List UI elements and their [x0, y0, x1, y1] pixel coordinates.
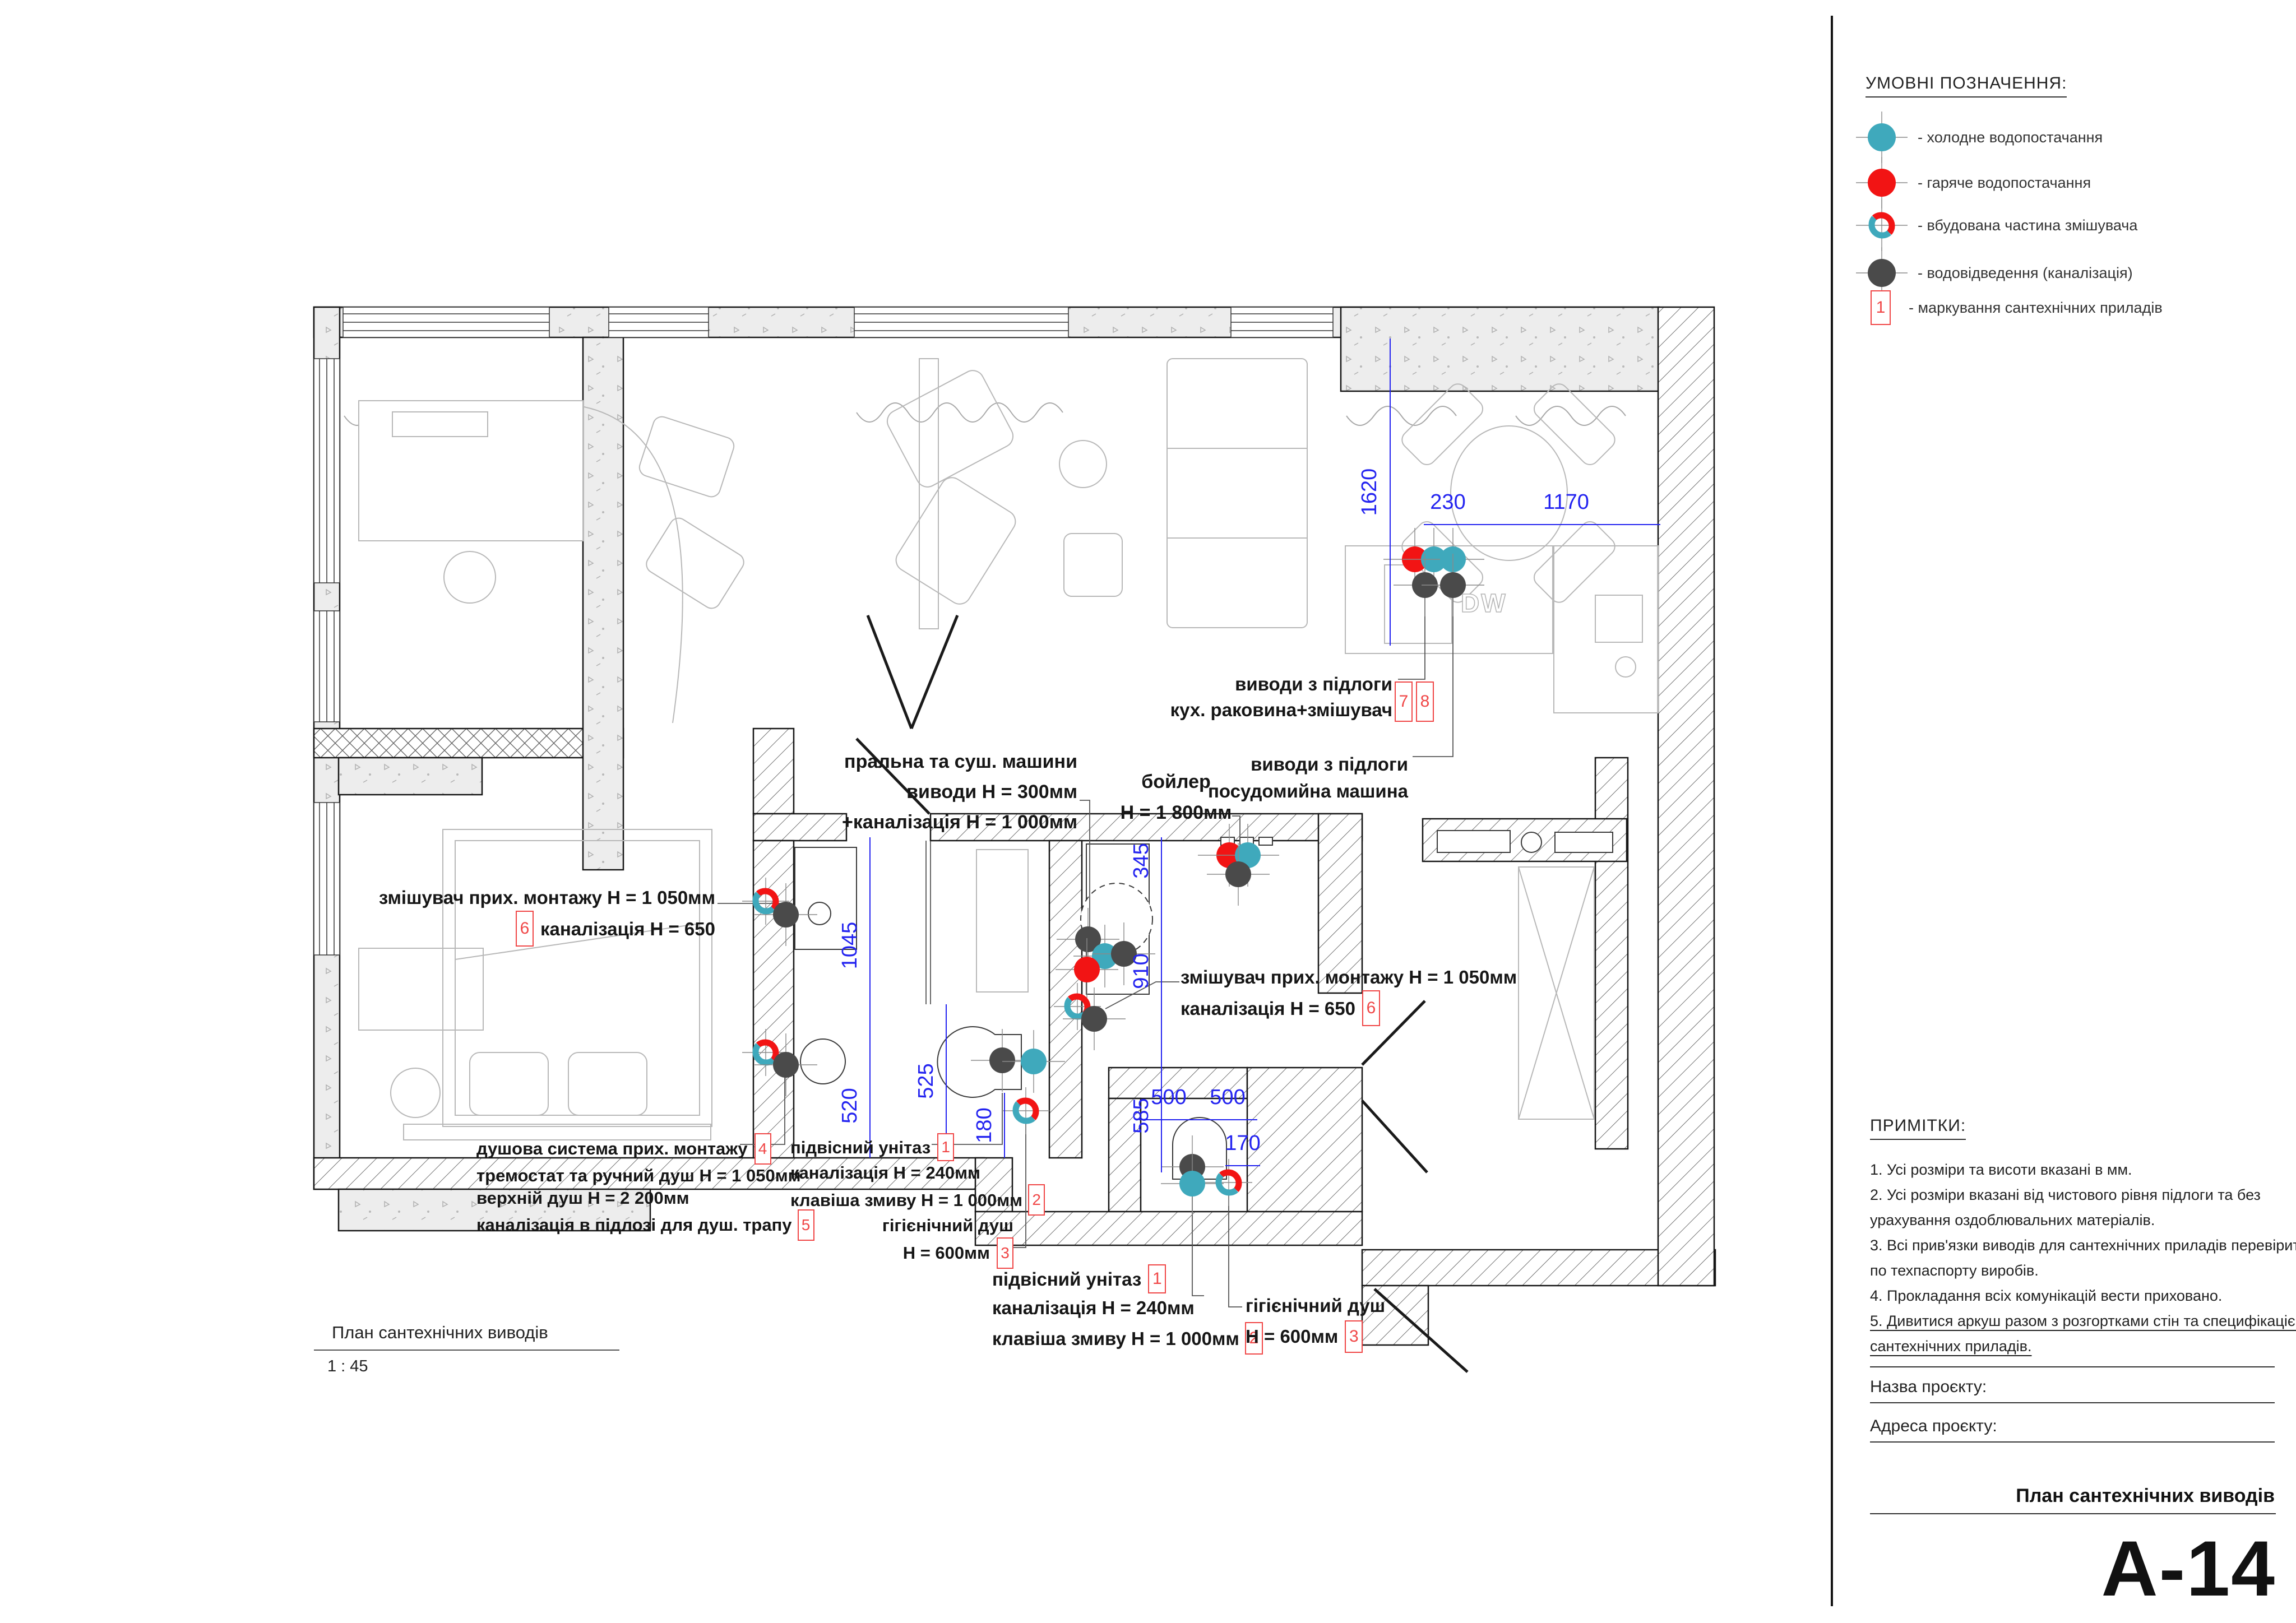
sheet-number: А-14 [2101, 1523, 2276, 1614]
note-line: 1. Усі розміри та висоти вказані в мм. [1870, 1161, 2132, 1179]
annotation-line: пральна та суш. машини [842, 746, 1077, 777]
annotation-line: гігієнічний душ [882, 1214, 1013, 1237]
dim-910: 910 [1130, 953, 1153, 989]
annotation-line: кух. раковина+змішувач [1170, 697, 1392, 723]
legend-item-fixture-numbering: 1 - маркування сантехнічних приладів [1854, 290, 2163, 325]
project-name-line [1870, 1402, 2275, 1403]
annotation-line: каналізація в підлозі для душ. трапу [476, 1214, 792, 1236]
annotation-line: душова система прих. монтажу [476, 1138, 748, 1160]
notes-bottom-rule [1870, 1366, 2275, 1367]
project-address-label: Адреса проєкту: [1870, 1417, 1997, 1436]
annotation-line: клавіша змиву Н = 1 000мм [992, 1324, 1239, 1353]
annotation-line: каналізація Н = 650 [1181, 995, 1355, 1022]
legend-item-label: - вбудована частина змішувача [1918, 217, 2137, 234]
fixture-number-2: 2 [1028, 1184, 1045, 1216]
annotation-line: виводи з підлоги [1170, 671, 1392, 697]
dim-170: 170 [1225, 1132, 1260, 1155]
annotation-hygienic-shower-1: гігієнічний душ Н = 600мм 3 [882, 1214, 1013, 1269]
dim-500b: 500 [1210, 1086, 1245, 1109]
note-line: 4. Прокладання всіх комунікацій вести пр… [1870, 1287, 2222, 1305]
dim-585: 585 [1130, 1098, 1153, 1133]
annotation-line: підвісний унітаз [992, 1265, 1141, 1293]
sheet-title-rule [1870, 1513, 2276, 1514]
notes-title: ПРИМІТКИ: [1870, 1116, 1966, 1140]
plan-caption-title: План сантехнічних виводів [332, 1323, 548, 1343]
annotation-line: Н = 600мм [903, 1241, 990, 1265]
annotation-mixer-bathroom: змішувач прих. монтажу Н = 1 050мм 6 кан… [379, 884, 715, 947]
fixture-number-4: 4 [754, 1133, 771, 1165]
dim-520: 520 [838, 1088, 862, 1123]
plan-caption-rule [314, 1350, 619, 1351]
annotation-line: тремостат та ручний душ Н = 1 050мм [476, 1165, 814, 1187]
dim-525: 525 [914, 1063, 938, 1098]
note-line: по техпаспорту виробів. [1870, 1262, 2039, 1279]
annotation-line: каналізація Н = 240мм [992, 1293, 1263, 1322]
annotation-line: +каналізація Н = 1 000мм [842, 807, 1077, 837]
annotation-kitchen-sink-outlets: виводи з підлоги кух. раковина+змішувач [1170, 671, 1392, 723]
dim-1045: 1045 [838, 922, 862, 970]
dim-230: 230 [1430, 490, 1465, 514]
fixture-number-3: 3 [1345, 1320, 1363, 1353]
annotation-mixer-wc: змішувач прих. монтажу Н = 1 050мм канал… [1181, 964, 1517, 1026]
annotation-line: виводи з підлоги [1208, 751, 1408, 778]
annotation-line: підвісний унітаз [790, 1136, 931, 1159]
fixture-number-1: 1 [937, 1133, 954, 1161]
legend-item-label: - водовідведення (каналізація) [1918, 265, 2133, 282]
legend-item-label: - холодне водопостачання [1918, 129, 2103, 146]
annotation-line: посудомийна машина [1208, 778, 1408, 805]
annotation-wall-toilet-1: підвісний унітаз 1 каналізація Н = 240мм… [790, 1133, 1045, 1216]
annotation-line: гігієнічний душ [1246, 1291, 1385, 1320]
annotation-line: каналізація Н = 240мм [790, 1161, 1045, 1184]
annotation-wall-toilet-2: підвісний унітаз 1 каналізація Н = 240мм… [992, 1264, 1263, 1355]
note-line: 3. Всі прив'язки виводів для сантехнічни… [1870, 1237, 2296, 1254]
annotation-line: змішувач прих. монтажу Н = 1 050мм [379, 884, 715, 911]
dim-1170: 1170 [1543, 490, 1589, 514]
project-name-label: Назва проєкту: [1870, 1378, 1987, 1397]
fixture-number-1: 1 [1148, 1264, 1166, 1293]
legend-item-label: - маркування сантехнічних приладів [1909, 299, 2163, 317]
sheet-divider-line [1831, 16, 1833, 1606]
fixture-number-6: 6 [1362, 990, 1380, 1026]
annotation-line: виводи Н = 300мм [842, 777, 1077, 807]
note-line: 5. Дивитися аркуш разом з розгортками ст… [1870, 1313, 2296, 1330]
note-line: 2. Усі розміри вказані від чистового рів… [1870, 1186, 2261, 1204]
mixer-builtin-marker [1002, 1087, 1049, 1134]
plan-caption-scale: 1 : 45 [327, 1357, 368, 1376]
annotation-line: каналізація Н = 650 [540, 916, 715, 942]
dim-500a: 500 [1151, 1086, 1186, 1109]
note-line: сантехнічних приладів. [1870, 1338, 2031, 1355]
annotation-dishwasher-outlets: виводи з підлоги посудомийна машина [1208, 751, 1408, 805]
annotation-line: клавіша змиву Н = 1 000мм [790, 1189, 1022, 1212]
annotation-line: змішувач прих. монтажу Н = 1 050мм [1181, 964, 1517, 990]
legend-item-label: - гаряче водопостачання [1918, 174, 2091, 192]
annotation-line: Н = 600мм [1246, 1322, 1338, 1351]
annotation-line: верхній душ Н = 2 200мм [476, 1187, 814, 1209]
dishwasher-label: DW [1461, 588, 1507, 618]
annotation-washer-dryer: пральна та суш. машини виводи Н = 300мм … [842, 746, 1077, 837]
project-address-line [1870, 1441, 2275, 1443]
fixture-number-7: 7 [1395, 681, 1413, 722]
fixture-number-icon: 1 [1871, 290, 1891, 325]
fixture-number-8: 8 [1416, 681, 1434, 722]
note-line: урахування оздоблювальних матеріалів. [1870, 1212, 2155, 1229]
sheet-title: План сантехнічних виводів [2016, 1485, 2275, 1507]
annotation-shower-system: душова система прих. монтажу 4 тремостат… [476, 1133, 814, 1241]
dim-345: 345 [1130, 843, 1153, 878]
dim-1620: 1620 [1358, 469, 1381, 516]
legend-title: УМОВНІ ПОЗНАЧЕННЯ: [1865, 74, 2067, 98]
fixture-number-6: 6 [516, 911, 534, 947]
annotation-hygienic-shower-2: гігієнічний душ Н = 600мм 3 [1246, 1291, 1385, 1353]
